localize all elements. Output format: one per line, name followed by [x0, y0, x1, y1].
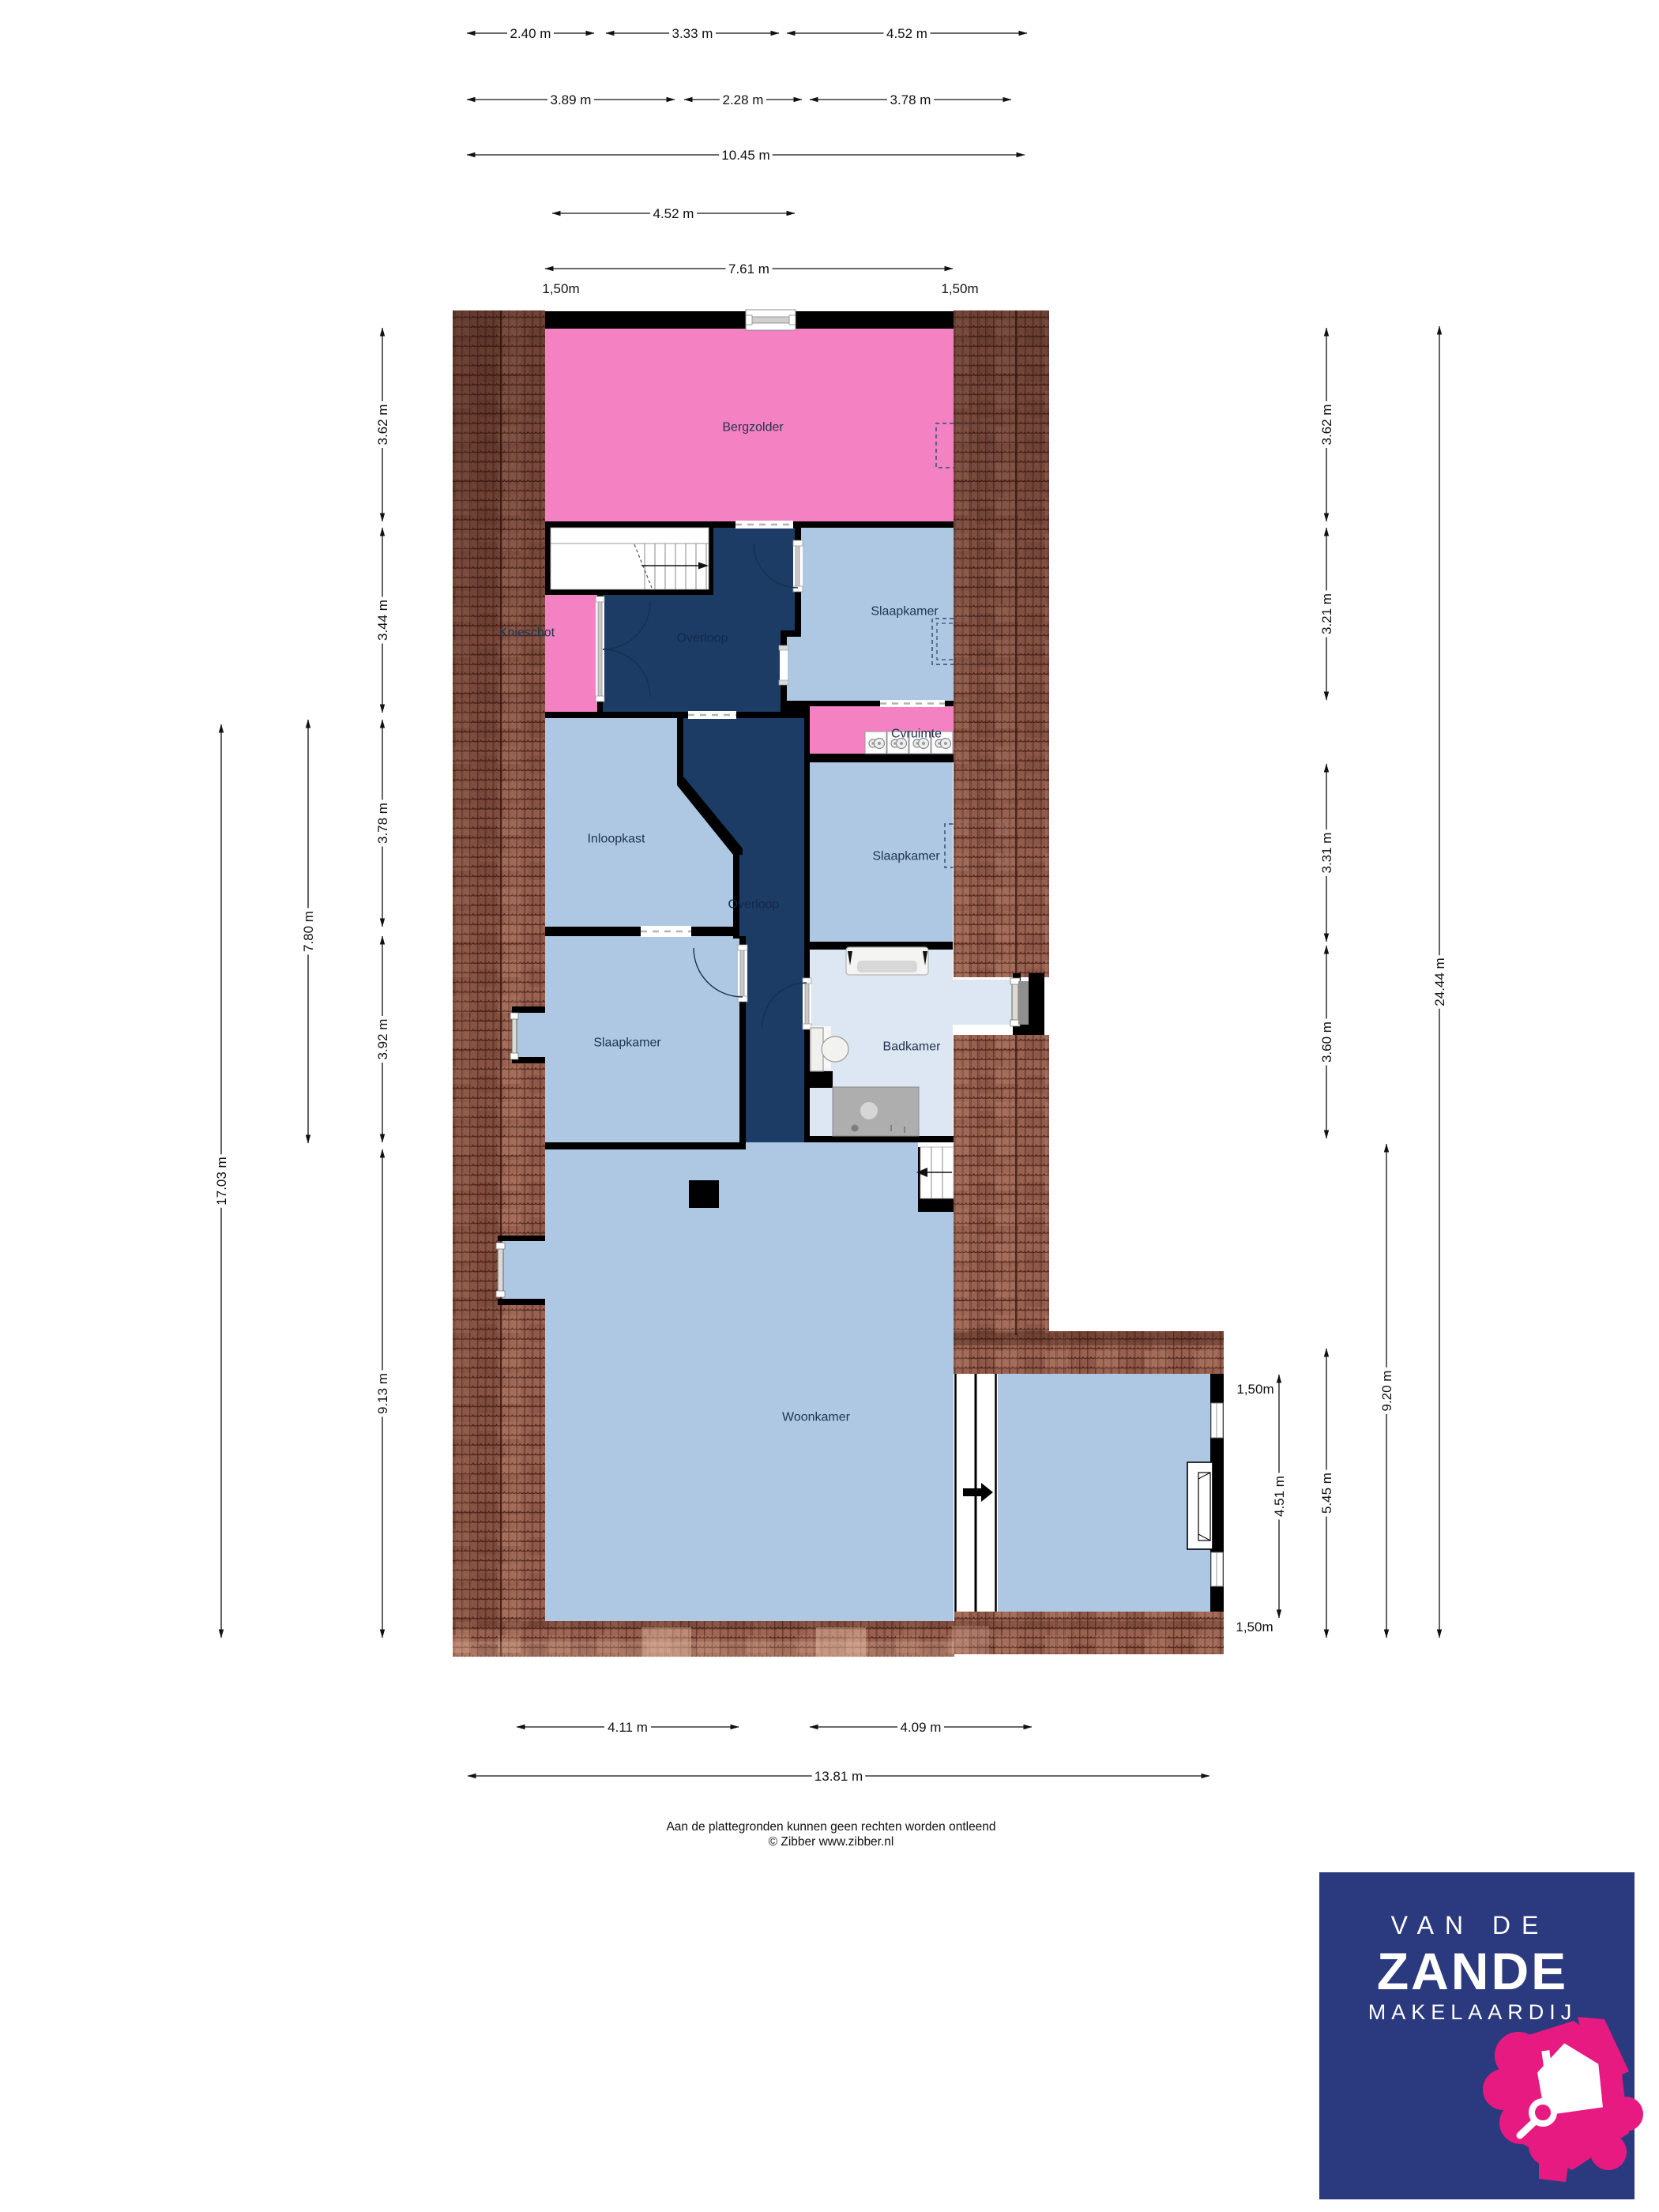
svg-text:Overloop: Overloop	[728, 897, 780, 911]
svg-text:3.60 m: 3.60 m	[1319, 1021, 1334, 1063]
svg-text:10.45 m: 10.45 m	[721, 148, 769, 163]
svg-text:3.78 m: 3.78 m	[890, 92, 931, 107]
svg-text:1,50m: 1,50m	[1236, 1382, 1273, 1397]
svg-text:Knieschot: Knieschot	[499, 626, 555, 639]
svg-text:© Zibber www.zibber.nl: © Zibber www.zibber.nl	[769, 1835, 894, 1849]
svg-text:VAN DE: VAN DE	[1391, 1911, 1550, 1939]
svg-text:Woonkamer: Woonkamer	[782, 1410, 851, 1424]
svg-text:1,50m: 1,50m	[1236, 1619, 1273, 1635]
svg-text:3.31 m: 3.31 m	[1319, 833, 1334, 874]
svg-text:Bergzolder: Bergzolder	[722, 420, 784, 434]
svg-text:Slaapkamer: Slaapkamer	[593, 1036, 661, 1049]
svg-text:3.21 m: 3.21 m	[1319, 593, 1334, 634]
svg-text:Cvruimte: Cvruimte	[891, 727, 942, 740]
svg-text:Badkamer: Badkamer	[883, 1040, 942, 1053]
svg-text:4.11 m: 4.11 m	[608, 1720, 648, 1735]
svg-text:Slaapkamer: Slaapkamer	[872, 849, 940, 863]
svg-text:MAKELAARDIJ: MAKELAARDIJ	[1368, 2000, 1578, 2024]
svg-text:Inloopkast: Inloopkast	[588, 832, 645, 845]
svg-text:ZANDE: ZANDE	[1377, 1942, 1568, 2000]
svg-text:17.03 m: 17.03 m	[214, 1157, 229, 1205]
svg-text:4.09 m: 4.09 m	[901, 1720, 942, 1735]
svg-text:3.44 m: 3.44 m	[375, 600, 390, 641]
svg-text:3.33 m: 3.33 m	[672, 26, 713, 41]
svg-text:2.28 m: 2.28 m	[723, 92, 764, 107]
svg-text:24.44 m: 24.44 m	[1432, 957, 1447, 1006]
svg-text:Slaapkamer: Slaapkamer	[871, 604, 939, 618]
svg-text:9.13 m: 9.13 m	[375, 1373, 390, 1414]
svg-text:13.81 m: 13.81 m	[814, 1769, 863, 1784]
svg-text:4.52 m: 4.52 m	[886, 26, 927, 41]
svg-text:3.89 m: 3.89 m	[551, 92, 592, 107]
svg-text:5.45 m: 5.45 m	[1319, 1473, 1334, 1514]
svg-text:3.78 m: 3.78 m	[375, 803, 390, 844]
svg-text:2.40 m: 2.40 m	[510, 26, 551, 41]
svg-text:3.62 m: 3.62 m	[375, 404, 390, 446]
svg-text:Overloop: Overloop	[677, 631, 728, 645]
svg-text:7.80 m: 7.80 m	[301, 911, 316, 952]
svg-text:9.20 m: 9.20 m	[1379, 1371, 1394, 1412]
svg-text:4.52 m: 4.52 m	[653, 206, 694, 221]
svg-text:1,50m: 1,50m	[941, 281, 978, 296]
svg-text:3.62 m: 3.62 m	[1319, 404, 1334, 446]
svg-text:1,50m: 1,50m	[542, 281, 579, 296]
svg-text:3.92 m: 3.92 m	[375, 1019, 390, 1060]
svg-text:7.61 m: 7.61 m	[728, 261, 769, 276]
svg-text:4.51 m: 4.51 m	[1272, 1476, 1287, 1517]
svg-text:Aan de plattegronden kunnen ge: Aan de plattegronden kunnen geen rechten…	[666, 1820, 995, 1834]
